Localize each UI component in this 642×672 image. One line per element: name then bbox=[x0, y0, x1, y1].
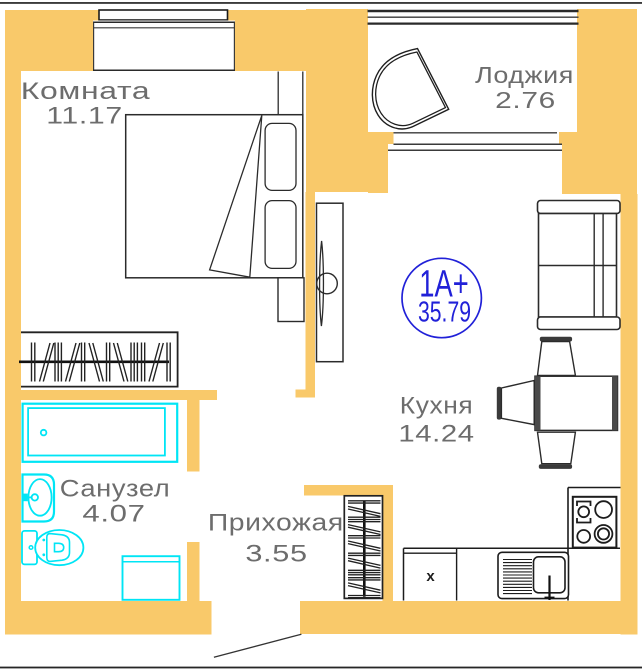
svg-text:Прихожая: Прихожая bbox=[208, 509, 344, 536]
svg-text:Санузел: Санузел bbox=[60, 476, 171, 502]
svg-text:35.79: 35.79 bbox=[418, 297, 471, 329]
svg-text:14.24: 14.24 bbox=[398, 420, 474, 447]
svg-text:2.76: 2.76 bbox=[495, 87, 556, 113]
svg-text:11.17: 11.17 bbox=[46, 101, 123, 128]
svg-text:3.55: 3.55 bbox=[245, 540, 307, 567]
svg-text:4.07: 4.07 bbox=[82, 500, 145, 527]
svg-text:x: x bbox=[426, 568, 435, 585]
svg-text:Лоджия: Лоджия bbox=[475, 63, 574, 89]
svg-text:Кухня: Кухня bbox=[400, 393, 473, 420]
svg-text:Комната: Комната bbox=[21, 77, 151, 104]
